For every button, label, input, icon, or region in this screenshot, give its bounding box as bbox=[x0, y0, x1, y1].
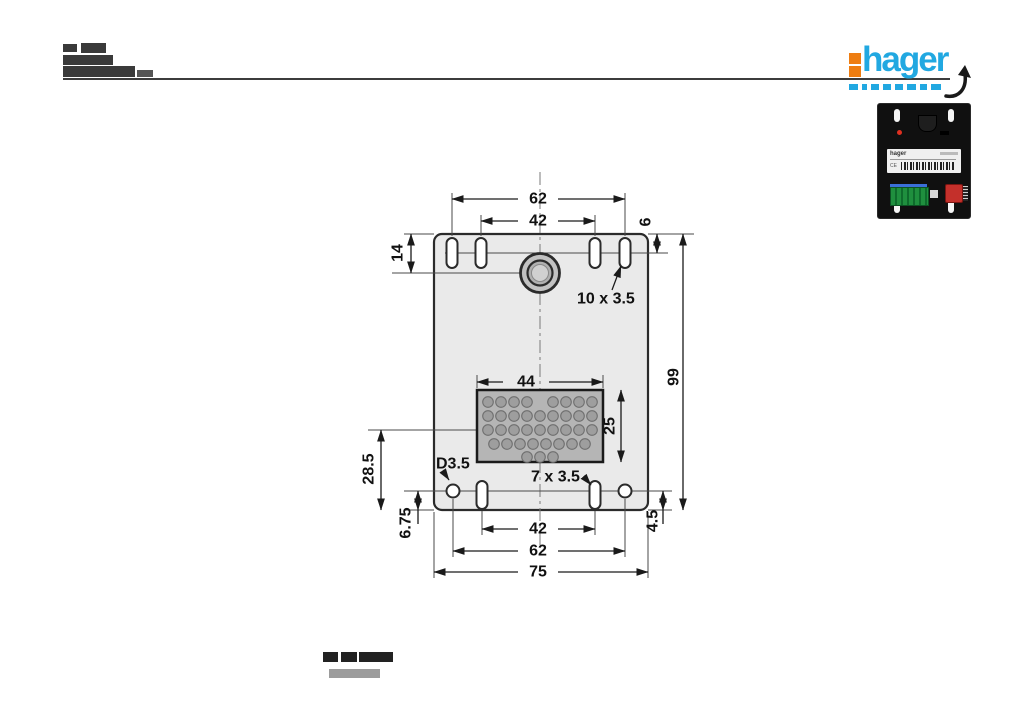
label-top-slots: 10 x 3.5 bbox=[577, 291, 635, 308]
redacted-part-subtext bbox=[329, 669, 380, 678]
dim-left-mid: 28.5 bbox=[361, 453, 378, 484]
dim-block-height: 25 bbox=[602, 417, 619, 435]
dim-top-outer: 62 bbox=[529, 191, 547, 208]
label-bottom-slots: 7 x 3.5 bbox=[531, 469, 580, 486]
dimensional-drawing: 62 42 14 6 10 x 3.5 99 44 25 28.5 D3.5 7… bbox=[0, 0, 1024, 724]
dim-left-bottom: 6.75 bbox=[398, 507, 415, 538]
dim-bottom-outer: 62 bbox=[529, 543, 547, 560]
dim-overall-height: 99 bbox=[666, 368, 683, 386]
dim-right-top: 6 bbox=[638, 217, 655, 226]
dim-block-width: 44 bbox=[517, 374, 535, 391]
dim-bottom-inner: 42 bbox=[529, 521, 547, 538]
dim-top-inner: 42 bbox=[529, 213, 547, 230]
dim-overall-width: 75 bbox=[529, 564, 547, 581]
datasheet-page: hager hager CE bbox=[0, 0, 1024, 724]
label-round-hole: D3.5 bbox=[436, 456, 470, 473]
center-washer bbox=[521, 254, 560, 293]
dim-left-top: 14 bbox=[390, 244, 407, 262]
dim-right-bottom: 4.5 bbox=[645, 510, 662, 532]
